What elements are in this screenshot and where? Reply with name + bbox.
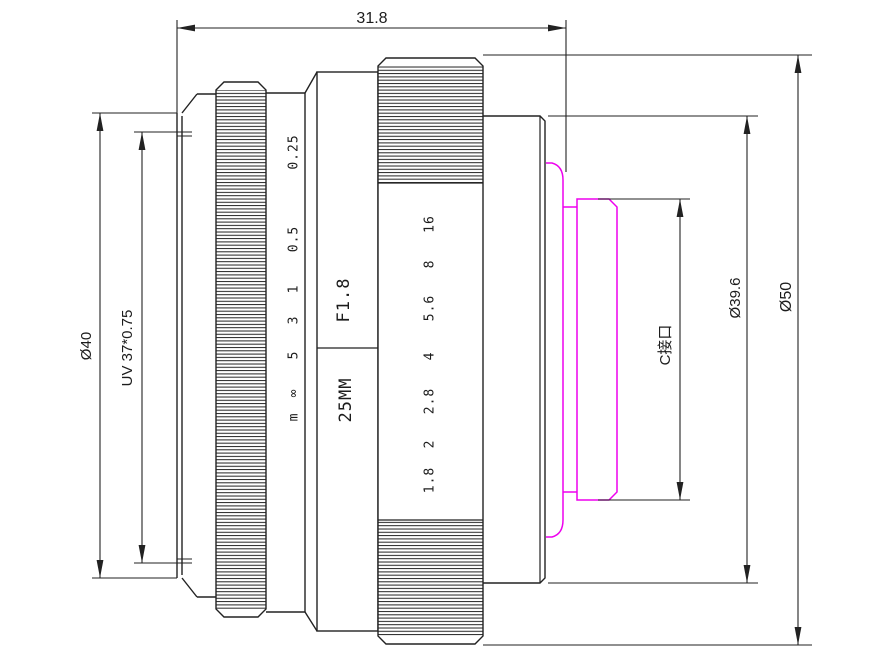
focus-scale-infinity: ∞ — [287, 389, 302, 398]
fstop-value: 2 — [423, 440, 438, 449]
lens-drawing: 31.8 0.25 0.5 1 3 5 ∞ m F1.8 25MM — [0, 0, 870, 669]
focus-scale-value: 1 — [287, 285, 302, 294]
front-rim — [177, 94, 216, 597]
outer-diameter-label: Ø50 — [778, 282, 795, 312]
dimension-outer-diameter: Ø50 — [483, 55, 812, 645]
arrow-up — [677, 199, 684, 217]
cone-line — [305, 72, 317, 93]
arrow-left — [177, 25, 195, 32]
front-barrel-outline — [317, 72, 378, 631]
arrow-up — [744, 116, 751, 134]
arrow-down — [795, 627, 802, 645]
fstop-value: 8 — [423, 260, 438, 269]
mount-base-profile — [546, 163, 563, 537]
focus-scale-value: 5 — [287, 351, 302, 360]
dimension-filter-thread: UV 37*0.75 — [119, 132, 192, 563]
fstop-value: 4 — [423, 352, 438, 361]
arrow-up — [795, 55, 802, 73]
fstop-value: 5.6 — [423, 295, 438, 321]
fstop-value: 16 — [423, 215, 438, 233]
arrow-up — [97, 113, 104, 131]
focus-ring — [216, 82, 266, 617]
arrow-down — [744, 565, 751, 583]
focus-scale-value: 0.5 — [287, 226, 302, 252]
aperture-marking: F1.8 — [334, 278, 354, 323]
rear-barrel-outline — [483, 116, 545, 583]
mount-thread-cylinder — [577, 199, 617, 500]
front-barrel: F1.8 25MM — [317, 72, 378, 631]
focus-scale-value: 0.25 — [287, 134, 302, 169]
aperture-knurl-bottom — [378, 520, 483, 636]
focus-ring-knurl-texture — [216, 90, 266, 609]
filter-thread-label: UV 37*0.75 — [119, 310, 136, 387]
arrow-down — [97, 560, 104, 578]
arrow-right — [548, 25, 566, 32]
mount-name-label: C接口 — [657, 325, 674, 366]
front-diameter-label: Ø40 — [78, 332, 95, 360]
rim-chamfer — [182, 578, 197, 597]
fstop-value: 1.8 — [423, 467, 438, 493]
arrow-down — [139, 545, 146, 563]
drawing-canvas: 31.8 0.25 0.5 1 3 5 ∞ m F1.8 25MM — [0, 0, 870, 669]
fstop-value: 2.8 — [423, 388, 438, 414]
focal-length-marking: 25MM — [336, 378, 356, 423]
overall-length-label: 31.8 — [356, 10, 387, 27]
focus-scale-band: 0.25 0.5 1 3 5 ∞ m — [266, 72, 317, 631]
c-mount — [546, 163, 617, 537]
aperture-ring: 16 8 5.6 4 2.8 2 1.8 — [378, 58, 483, 644]
mount-diameter-label: Ø39.6 — [727, 278, 744, 319]
rear-barrel — [483, 116, 545, 583]
dimension-mount-diameter: Ø39.6 — [548, 116, 758, 583]
dimension-mount: C接口 — [598, 199, 690, 500]
focus-scale-value: 3 — [287, 316, 302, 325]
cone-line — [305, 612, 317, 631]
aperture-knurl-top — [378, 66, 483, 183]
focus-scale-unit: m — [287, 413, 302, 422]
rim-chamfer — [182, 94, 197, 113]
arrow-up — [139, 132, 146, 150]
arrow-down — [677, 482, 684, 500]
